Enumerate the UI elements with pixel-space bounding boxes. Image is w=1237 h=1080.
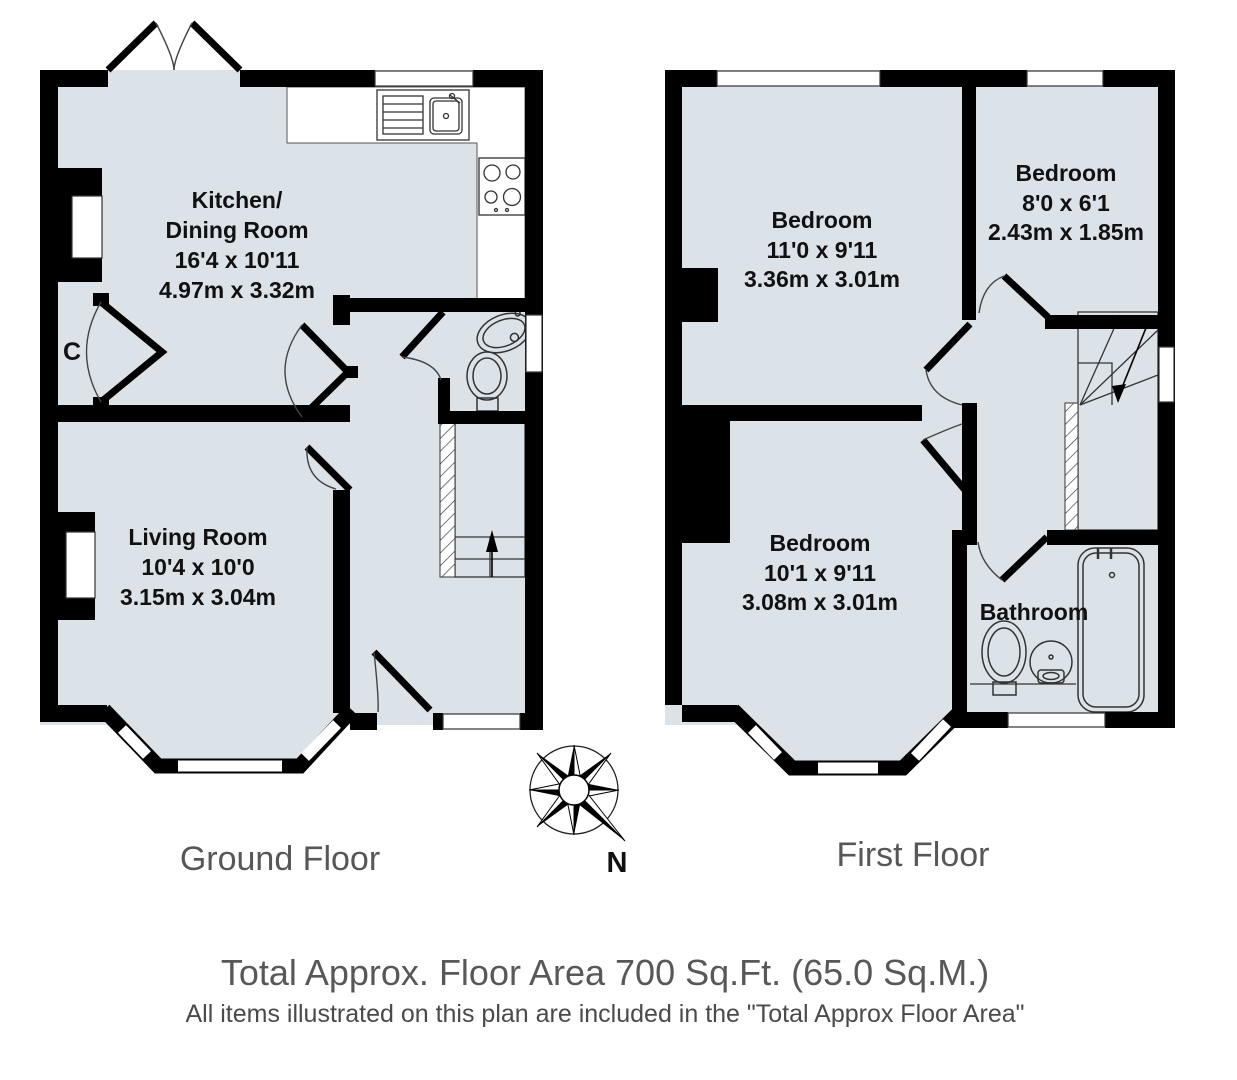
first-floor-plan: Bedroom 11'0 x 9'11 3.36m x 3.01m Bedroo… — [665, 70, 1175, 770]
bed3-chimney-breast — [682, 420, 730, 543]
bedroom1-name: Bedroom — [772, 207, 873, 233]
bed1-window — [717, 71, 880, 86]
bathroom-name: Bathroom — [980, 599, 1089, 625]
bedroom3-size-imperial: 10'1 x 9'11 — [764, 560, 876, 586]
stairs-window — [1159, 347, 1174, 402]
left-wall — [40, 70, 58, 718]
bedroom2-size-imperial: 8'0 x 6'1 — [1022, 190, 1110, 216]
floor-area-disclaimer-text: All items illustrated on this plan are i… — [185, 1000, 1024, 1028]
wc-window — [526, 315, 542, 372]
ground-floor-plan: Kitchen/ Dining Room 16'4 x 10'11 4.97m … — [40, 23, 543, 770]
kitchen-name-line2: Dining Room — [165, 217, 308, 243]
footer: Total Approx. Floor Area 700 Sq.Ft. (65.… — [185, 952, 1024, 1028]
kitchen-hall-wall — [345, 298, 543, 312]
left-wall-first — [665, 70, 682, 705]
first-floor-label: First Floor — [837, 836, 990, 874]
compass-rose-icon — [529, 745, 625, 841]
living-room-size-imperial: 10'4 x 10'0 — [141, 554, 254, 580]
french-doors — [108, 23, 240, 70]
living-chimney-breast — [58, 512, 95, 620]
bed2-landing-wall — [1045, 315, 1158, 329]
kitchen-chimney-breast — [58, 168, 102, 282]
bed2-window — [1027, 71, 1103, 86]
right-wall — [525, 70, 543, 730]
bedroom1-size-metric: 3.36m x 3.01m — [744, 266, 900, 292]
bed1-bed3-wall — [682, 405, 922, 421]
hall-living-wall — [333, 490, 350, 713]
bathroom-landing-wall — [1047, 530, 1158, 545]
bathroom-left-wall — [952, 530, 967, 728]
north-label: N — [607, 847, 628, 879]
living-room-name: Living Room — [128, 524, 267, 550]
kitchen-window — [375, 71, 473, 86]
living-room-size-metric: 3.15m x 3.04m — [120, 584, 276, 610]
bedroom2-size-metric: 2.43m x 1.85m — [988, 219, 1144, 245]
bedroom3-size-metric: 3.08m x 3.01m — [742, 589, 898, 615]
hall-window — [443, 714, 520, 729]
kitchen-size-imperial: 16'4 x 10'11 — [175, 247, 300, 273]
ground-floor-fill — [40, 70, 543, 725]
ground-floor-label: Ground Floor — [180, 840, 380, 878]
floorplan-drawing: Kitchen/ Dining Room 16'4 x 10'11 4.97m … — [0, 0, 1237, 1080]
bedroom3-name: Bedroom — [770, 530, 871, 556]
bed1-chimney-breast — [682, 268, 718, 322]
kitchen-name-line1: Kitchen/ — [192, 187, 283, 213]
bedroom2-name: Bedroom — [1016, 160, 1117, 186]
bed1-bed2-wall — [962, 87, 976, 320]
landing-wall — [962, 403, 977, 530]
kitchen-size-metric: 4.97m x 3.32m — [159, 277, 315, 303]
bathroom-window — [1008, 713, 1105, 727]
wc-wall — [438, 411, 543, 424]
floorplan-page: Kitchen/ Dining Room 16'4 x 10'11 4.97m … — [0, 0, 1237, 1080]
bedroom1-size-imperial: 11'0 x 9'11 — [767, 237, 878, 263]
total-floor-area-text: Total Approx. Floor Area 700 Sq.Ft. (65.… — [221, 952, 989, 993]
cupboard-label: C — [63, 338, 81, 366]
